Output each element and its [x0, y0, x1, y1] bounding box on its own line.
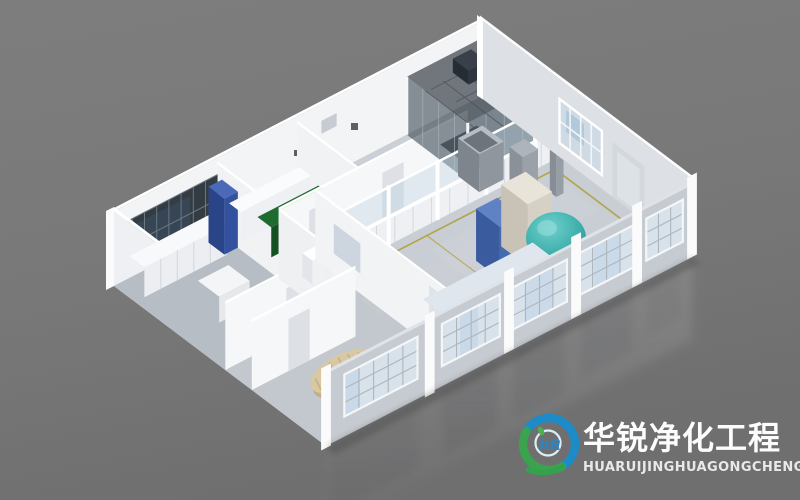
render-canvas: hR 华锐净化工程 HUARUIJINGHUAGONGCHENG [0, 0, 800, 500]
logo-company-name-cn: 华锐净化工程 [583, 419, 781, 457]
wall-switch-box-1 [351, 123, 358, 130]
door-meeting [288, 308, 309, 371]
cleanroom-render: hR 华锐净化工程 HUARUIJINGHUAGONGCHENG [0, 0, 800, 500]
blue-tall-cabinet [209, 180, 238, 255]
logo-company-name-en: HUARUIJINGHUAGONGCHENG [583, 460, 800, 475]
logo-monogram: hR [539, 436, 561, 454]
west-wall-edge [106, 207, 114, 290]
east-corner-strip [477, 15, 483, 100]
dome-highlight [537, 220, 557, 236]
